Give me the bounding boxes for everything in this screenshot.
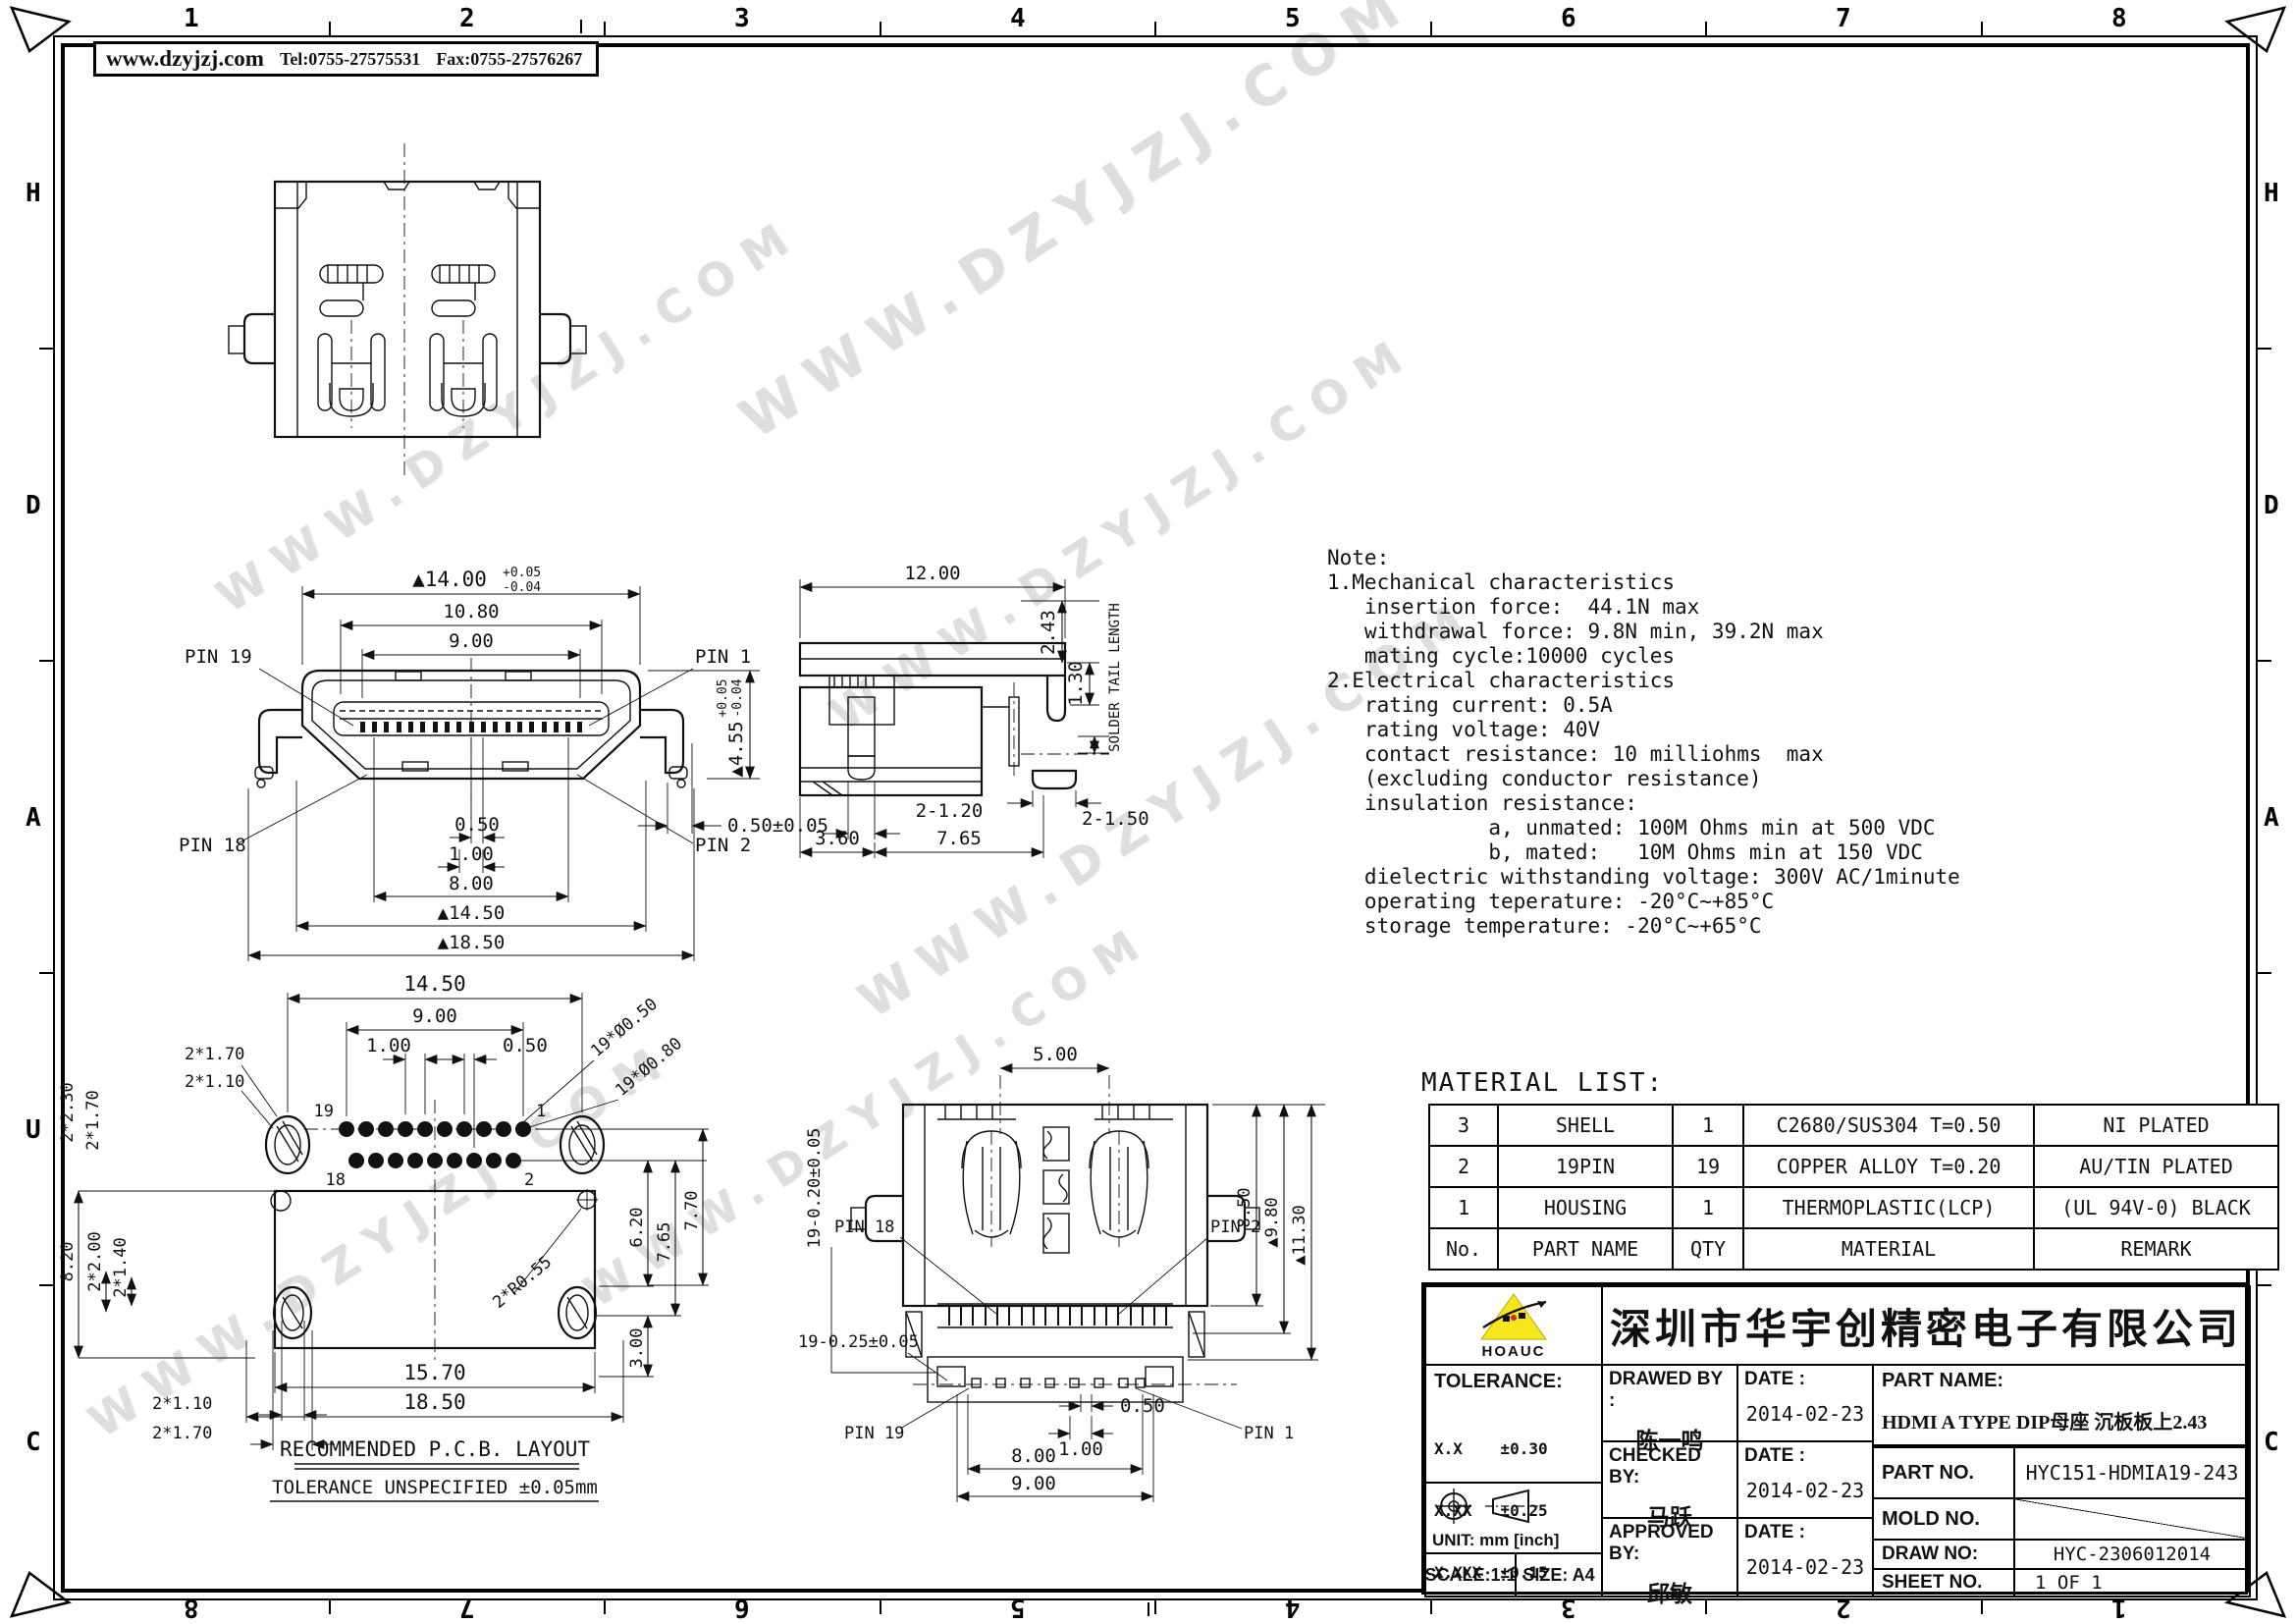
table-row: 3 SHELL 1 C2680/SUS304 T=0.50 NI PLATED xyxy=(1429,1105,2278,1146)
dim-label: ▲18.50 xyxy=(438,932,506,953)
dim-label: ▲11.30 xyxy=(1290,1205,1309,1265)
dim-label: 1.00 xyxy=(449,843,494,865)
size-label: SIZE: A4 xyxy=(1515,1552,1603,1597)
pin-number: 18 xyxy=(326,1170,346,1190)
note-line: Note: xyxy=(1327,546,1960,570)
sheet-no-value: 1 OF 1 xyxy=(2013,1568,2251,1597)
dim-label: 8.00 xyxy=(449,873,494,894)
hole-callout: 19*Ø0.80 xyxy=(612,1034,686,1101)
note-line: a, unmated: 100M Ohms min at 500 VDC xyxy=(1327,816,1960,840)
mold-no-label: MOLD NO. xyxy=(1872,1497,2015,1541)
cell-remark: (UL 94V-0) BLACK xyxy=(2034,1187,2278,1228)
drawed-by-cell: DRAWED BY : 陈一鸣 xyxy=(1601,1364,1738,1442)
dim-tolerance: -0.04 xyxy=(730,678,745,717)
dim-label: ▲14.00 xyxy=(412,568,487,591)
cell-qty: 1 xyxy=(1673,1105,1743,1146)
side-view: 12.00 2.43 1.30 SOLDER TAIL LENGTH 2-1.2… xyxy=(775,550,1183,879)
dim-label: 2*1.70 xyxy=(185,1045,244,1064)
cell-qty: 1 xyxy=(1673,1187,1743,1228)
dim-label: 7.65 xyxy=(936,828,982,849)
cell-part: 19PIN xyxy=(1498,1146,1673,1187)
date-label: DATE : xyxy=(1744,1445,1866,1467)
dim-label: 2-1.20 xyxy=(916,800,984,822)
dim-label: 9.00 xyxy=(449,630,494,652)
dim-tolerance: +0.05 xyxy=(503,566,541,580)
back-view-dimensions: 5.00 19-0.20±0.05 PIN 18 PIN 2 8.50 ▲9.8… xyxy=(798,1044,1325,1502)
back-view-geometry xyxy=(851,1105,1259,1402)
note-line: insertion force: 44.1N max xyxy=(1327,595,1960,620)
material-list-table: 3 SHELL 1 C2680/SUS304 T=0.50 NI PLATED … xyxy=(1428,1104,2279,1271)
cell-remark: AU/TIN PLATED xyxy=(2034,1146,2278,1187)
dim-label: 7.65 xyxy=(655,1222,674,1263)
dim-label: 6.20 xyxy=(627,1208,647,1248)
pin-label: PIN 18 xyxy=(179,835,246,856)
cell-part: SHELL xyxy=(1498,1105,1673,1146)
pcb-dimensions: 14.50 9.00 1.00 0.50 19*Ø0.50 19*Ø0.80 2… xyxy=(58,972,709,1450)
pcb-layout-view: 14.50 9.00 1.00 0.50 19*Ø0.50 19*Ø0.80 2… xyxy=(59,967,785,1517)
dim-tolerance: +0.05 xyxy=(716,678,730,717)
solder-tail-note: SOLDER TAIL LENGTH xyxy=(1107,603,1123,752)
pcb-captions: RECOMMENDED P.C.B. LAYOUT TOLERANCE UNSP… xyxy=(270,1437,599,1501)
drawed-date: 2014-02-23 xyxy=(1744,1402,1866,1426)
draw-no-label: DRAW NO: xyxy=(1872,1539,2015,1570)
cell-no: 3 xyxy=(1429,1105,1498,1146)
approved-by-name: 邱敏 xyxy=(1609,1575,1731,1608)
sheet-no-label: SHEET NO. xyxy=(1872,1568,2015,1597)
date-label: DATE : xyxy=(1744,1522,1866,1543)
hole-callout: 19*Ø0.50 xyxy=(587,995,662,1061)
dim-label: 2*2.00 xyxy=(85,1231,105,1291)
scale-label: SCALE:1:1 xyxy=(1424,1552,1517,1597)
pin-label: PIN 19 xyxy=(185,646,252,668)
col-header-part: PART NAME xyxy=(1498,1228,1673,1270)
cell-part: HOUSING xyxy=(1498,1187,1673,1228)
dim-label: 15.70 xyxy=(403,1361,465,1384)
unit-label: UNIT: mm [inch] xyxy=(1432,1531,1595,1550)
tolerance-label: TOLERANCE: xyxy=(1434,1371,1593,1393)
drawed-by-label: DRAWED BY : xyxy=(1609,1369,1731,1412)
tolerance-row: X.X ±0.30 xyxy=(1434,1438,1593,1459)
pin-label: PIN 1 xyxy=(1244,1424,1294,1443)
cell-material: THERMOPLASTIC(LCP) xyxy=(1743,1187,2034,1228)
dim-label: ▲9.80 xyxy=(1262,1197,1282,1247)
vendor-tel: Tel:0755-27575531 xyxy=(280,49,420,70)
dim-label: 8.20 xyxy=(58,1242,78,1282)
vendor-contact-bar: www.dzyjzj.com Tel:0755-27575531 Fax:075… xyxy=(93,41,599,77)
pin-label: PIN 2 xyxy=(695,835,751,856)
note-line: withdrawal force: 9.8N min, 39.2N max xyxy=(1327,620,1960,644)
part-name-value: HDMI A TYPE DIP母座 沉板板上2.43 xyxy=(1882,1406,2241,1435)
dim-label: 5.00 xyxy=(1033,1044,1078,1065)
dim-label: 3.60 xyxy=(815,828,860,849)
front-view: ▲14.00 +0.05 -0.04 10.80 9.00 PIN 19 PIN… xyxy=(157,525,790,967)
pin-label: PIN 19 xyxy=(844,1424,904,1443)
pcb-caption: RECOMMENDED P.C.B. LAYOUT xyxy=(280,1437,590,1461)
dim-label: 2*1.40 xyxy=(111,1237,131,1297)
dim-label: 9.00 xyxy=(412,1005,457,1027)
company-name: 深圳市华宇创精密电子有限公司 xyxy=(1601,1285,2251,1366)
note-line: rating current: 0.5A xyxy=(1327,693,1960,718)
dim-label: 10.80 xyxy=(443,601,499,623)
dim-label: 19-0.25±0.05 xyxy=(798,1332,919,1352)
dim-label: 12.00 xyxy=(904,563,960,584)
note-line: storage temperature: -20°C~+65°C xyxy=(1327,914,1960,939)
tolerance-box: TOLERANCE: X.X ±0.30 X.XX ±0.25 X.XXX ±0… xyxy=(1424,1364,1603,1484)
table-row: 2 19PIN 19 COPPER ALLOY T=0.20 AU/TIN PL… xyxy=(1429,1146,2278,1187)
part-no-label: PART NO. xyxy=(1872,1446,2015,1499)
dim-tolerance: -0.04 xyxy=(503,580,541,595)
dim-label: 2*1.70 xyxy=(83,1090,103,1150)
dim-label: 18.50 xyxy=(403,1390,465,1414)
part-name-cell: PART NAME: HDMI A TYPE DIP母座 沉板板上2.43 xyxy=(1872,1364,2251,1446)
dim-label: 2*2.30 xyxy=(58,1082,78,1142)
part-name-label: PART NAME: xyxy=(1882,1370,2241,1392)
approved-by-cell: APPROVED BY: 邱敏 xyxy=(1601,1517,1738,1597)
pin-number: 1 xyxy=(536,1102,546,1121)
dim-label: ▲4.55 xyxy=(725,721,747,777)
note-line: b, mated: 10M Ohms min at 150 VDC xyxy=(1327,840,1960,865)
checked-by-cell: CHECKED BY: 马跃 xyxy=(1601,1440,1738,1519)
notes-block: Note: 1.Mechanical characteristics inser… xyxy=(1327,546,1960,939)
mold-no-value xyxy=(2013,1497,2251,1541)
cell-material: C2680/SUS304 T=0.50 xyxy=(1743,1105,2034,1146)
table-row: 1 HOUSING 1 THERMOPLASTIC(LCP) (UL 94V-0… xyxy=(1429,1187,2278,1228)
dim-label: 2*1.10 xyxy=(185,1072,244,1092)
drawed-date-cell: DATE : 2014-02-23 xyxy=(1736,1364,1874,1442)
dim-label: 8.00 xyxy=(1011,1445,1056,1467)
dim-label: 3.00 xyxy=(627,1328,647,1369)
pin-label: PIN 18 xyxy=(834,1218,894,1237)
pin-number: 19 xyxy=(314,1102,334,1121)
back-view: 5.00 19-0.20±0.05 PIN 18 PIN 2 8.50 ▲9.8… xyxy=(790,1021,1369,1512)
approved-date: 2014-02-23 xyxy=(1744,1555,1866,1579)
vendor-fax: Fax:0755-27576267 xyxy=(436,49,582,70)
note-line: mating cycle:10000 cycles xyxy=(1327,644,1960,669)
note-line: insulation resistance: xyxy=(1327,791,1960,816)
pcb-geometry xyxy=(266,1100,604,1365)
title-block: HOAUC 深圳市华宇创精密电子有限公司 TOLERANCE: X.X ±0.3… xyxy=(1421,1282,2248,1595)
note-line: (excluding conductor resistance) xyxy=(1327,767,1960,791)
part-no-value: HYC151-HDMIA19-243 xyxy=(2013,1446,2251,1499)
dim-label: 14.50 xyxy=(403,972,465,996)
note-line: dielectric withstanding voltage: 300V AC… xyxy=(1327,865,1960,890)
dim-label: 8.50 xyxy=(1235,1188,1255,1228)
cell-remark: NI PLATED xyxy=(2034,1105,2278,1146)
top-view-geometry xyxy=(229,143,586,475)
company-name-text: 深圳市华宇创精密电子有限公司 xyxy=(1610,1296,2242,1356)
dim-label: 2.43 xyxy=(1038,610,1059,655)
note-line: contact resistance: 10 milliohms max xyxy=(1327,742,1960,767)
col-header-remark: REMARK xyxy=(2034,1228,2278,1270)
col-header-qty: QTY xyxy=(1673,1228,1743,1270)
pin-label: PIN 1 xyxy=(695,646,751,668)
side-view-geometry xyxy=(800,643,1109,795)
projection-symbol-icon xyxy=(1432,1486,1550,1527)
checked-by-label: CHECKED BY: xyxy=(1609,1445,1731,1489)
table-header-row: No. PART NAME QTY MATERIAL REMARK xyxy=(1429,1228,2278,1270)
dim-label: 1.30 xyxy=(1065,661,1087,706)
dim-label: 19-0.20±0.05 xyxy=(805,1128,825,1249)
dim-label: 2-1.50 xyxy=(1082,808,1149,830)
dim-label: 1.00 xyxy=(366,1035,411,1056)
cell-no: 2 xyxy=(1429,1146,1498,1187)
col-header-material: MATERIAL xyxy=(1743,1228,2034,1270)
dim-label: ▲14.50 xyxy=(438,902,506,924)
draw-no-value: HYC-2306012014 xyxy=(2013,1539,2251,1570)
logo-text: HOAUC xyxy=(1482,1343,1546,1360)
cell-material: COPPER ALLOY T=0.20 xyxy=(1743,1146,2034,1187)
dim-label: 7.70 xyxy=(682,1191,702,1231)
dim-label: 2*1.70 xyxy=(152,1424,212,1443)
vendor-website: www.dzyjzj.com xyxy=(106,46,264,72)
dim-label: 0.50 xyxy=(503,1035,548,1056)
note-line: operating teperature: -20°C~+85°C xyxy=(1327,890,1960,914)
drawing-sheet: WWW.DZYJZJ.COM WWW.DZYJZJ.COM WWW.DZYJZJ… xyxy=(0,0,2296,1624)
approved-date-cell: DATE : 2014-02-23 xyxy=(1736,1517,1874,1597)
note-line: 2.Electrical characteristics xyxy=(1327,669,1960,693)
checked-date: 2014-02-23 xyxy=(1744,1479,1866,1502)
col-header-no: No. xyxy=(1429,1228,1498,1270)
note-line: rating voltage: 40V xyxy=(1327,718,1960,742)
pin-number: 2 xyxy=(524,1170,534,1190)
projection-unit-box: UNIT: mm [inch] xyxy=(1424,1482,1603,1554)
dim-label: 1.00 xyxy=(1058,1438,1103,1460)
checked-date-cell: DATE : 2014-02-23 xyxy=(1736,1440,1874,1519)
dim-label: 0.50 xyxy=(454,814,500,836)
top-view xyxy=(211,137,594,481)
cell-qty: 19 xyxy=(1673,1146,1743,1187)
approved-by-label: APPROVED BY: xyxy=(1609,1522,1731,1565)
dim-label: 2*1.10 xyxy=(152,1394,212,1414)
company-logo: HOAUC xyxy=(1424,1285,1603,1366)
material-list-title: MATERIAL LIST: xyxy=(1421,1068,1664,1098)
cell-no: 1 xyxy=(1429,1187,1498,1228)
hoauc-logo-icon xyxy=(1475,1292,1552,1343)
note-line: 1.Mechanical characteristics xyxy=(1327,570,1960,595)
pcb-tolerance-note: TOLERANCE UNSPECIFIED ±0.05mm xyxy=(272,1477,598,1498)
dim-label: 9.00 xyxy=(1011,1473,1056,1494)
side-view-dimensions: 12.00 2.43 1.30 SOLDER TAIL LENGTH 2-1.2… xyxy=(800,563,1149,858)
date-label: DATE : xyxy=(1744,1369,1866,1390)
